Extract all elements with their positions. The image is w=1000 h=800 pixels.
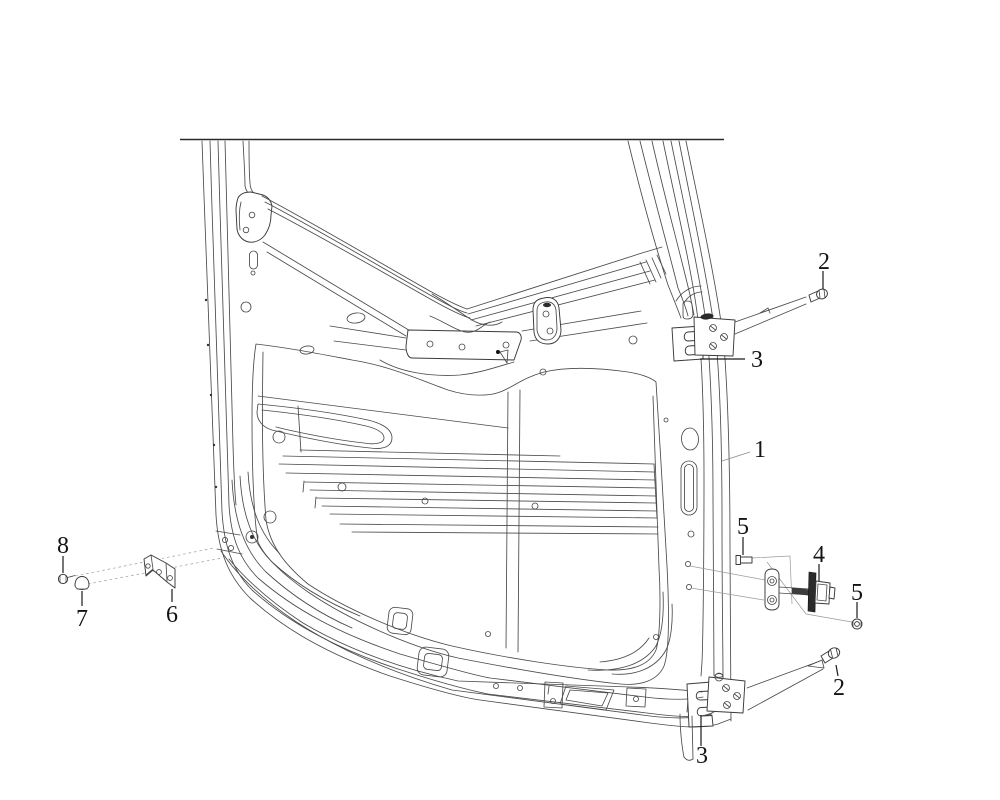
svg-text:5: 5 [737, 514, 749, 540]
svg-text:5: 5 [851, 580, 863, 606]
svg-text:3: 3 [751, 347, 763, 373]
svg-text:2: 2 [833, 675, 845, 701]
svg-text:1: 1 [754, 437, 766, 463]
svg-text:6: 6 [166, 602, 178, 628]
svg-text:3: 3 [696, 743, 708, 769]
svg-text:4: 4 [813, 542, 825, 568]
svg-text:7: 7 [76, 606, 88, 632]
svg-text:8: 8 [57, 533, 69, 559]
svg-text:2: 2 [818, 249, 830, 275]
